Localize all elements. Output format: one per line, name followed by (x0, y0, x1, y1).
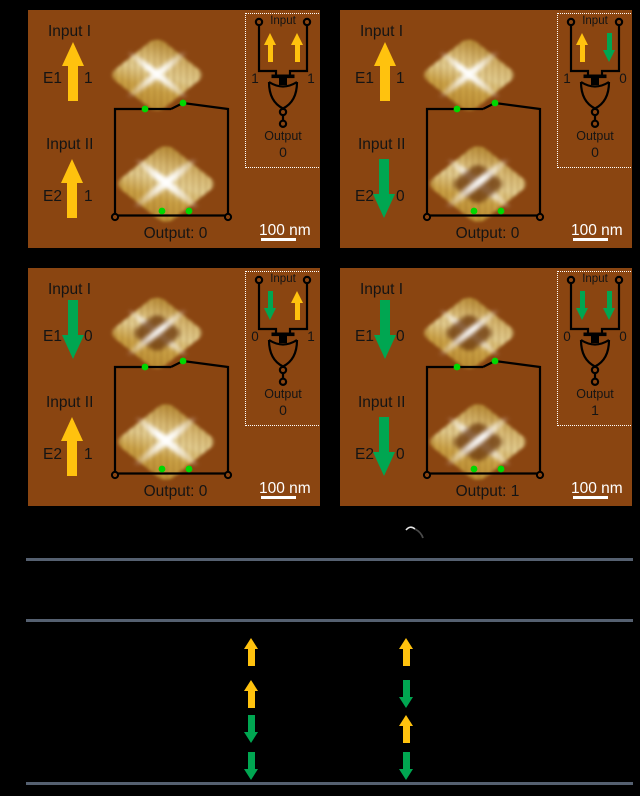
scalebar-line (573, 238, 608, 241)
table-row1-input1-arrow-icon (244, 638, 259, 666)
logic-gate-inset: Input 0 1 Output 0 (245, 271, 320, 426)
inset-output-label: Output (246, 129, 320, 143)
scalebar-label: 100 nm (571, 222, 623, 239)
inset-right-bit: 0 (616, 329, 630, 344)
afm-panel-10: Input I E1 1 Input II E2 0 Output: 0 100… (340, 10, 632, 248)
output-label: Output: 1 (435, 483, 540, 500)
inset-output-value: 0 (558, 144, 632, 160)
inset-left-bit: 1 (560, 71, 574, 86)
table-row2-input1-arrow-icon (244, 680, 259, 708)
inset-right-arrow-icon (291, 33, 304, 62)
output-label: Output: 0 (123, 483, 228, 500)
inset-output-value: 0 (246, 144, 320, 160)
scalebar-label: 100 nm (259, 480, 311, 497)
inset-output-label: Output (558, 387, 632, 401)
afm-panel-01: Input I E1 0 Input II E2 1 Output: 0 100… (28, 268, 320, 506)
table-row1-input2-arrow-icon (399, 638, 414, 666)
inset-right-bit: 1 (304, 329, 318, 344)
inset-left-arrow-icon (576, 291, 589, 320)
table-rule-middle (26, 619, 633, 622)
afm-panel-00: Input I E1 0 Input II E2 0 Output: 1 100… (340, 268, 632, 506)
inset-output-label: Output (558, 129, 632, 143)
inset-left-arrow-icon (264, 291, 277, 320)
inset-right-bit: 0 (616, 71, 630, 86)
inset-right-bit: 1 (304, 71, 318, 86)
inset-right-arrow-icon (291, 291, 304, 320)
afm-panel-11: Input I E1 1 Input II E2 1 Output: 0 100… (28, 10, 320, 248)
table-row4-input1-arrow-icon (244, 752, 259, 780)
inset-left-bit: 0 (248, 329, 262, 344)
scalebar-label: 100 nm (571, 480, 623, 497)
scalebar-label: 100 nm (259, 222, 311, 239)
inset-left-arrow-icon (576, 33, 589, 62)
output-label: Output: 0 (435, 225, 540, 242)
scalebar-line (261, 496, 296, 499)
logic-gate-inset: Input 0 0 Output 1 (557, 271, 632, 426)
logic-gate-inset: Input 1 0 Output 0 (557, 13, 632, 168)
table-row2-input2-arrow-icon (399, 680, 414, 708)
inset-output-value: 1 (558, 402, 632, 418)
scalebar-line (261, 238, 296, 241)
inset-output-label: Output (246, 387, 320, 401)
output-label: Output: 0 (123, 225, 228, 242)
inset-left-bit: 1 (248, 71, 262, 86)
table-row3-input1-arrow-icon (244, 715, 259, 743)
nor-gate-figure: Input I E1 1 Input II E2 1 Output: 0 100… (0, 0, 640, 796)
table-rule-bottom (26, 782, 633, 785)
inset-left-arrow-icon (264, 33, 277, 62)
table-rule-top (26, 558, 633, 561)
inset-right-arrow-icon (603, 291, 616, 320)
table-row4-input2-arrow-icon (399, 752, 414, 780)
stray-mark (402, 521, 432, 541)
scalebar-line (573, 496, 608, 499)
logic-gate-inset: Input 1 1 Output 0 (245, 13, 320, 168)
inset-right-arrow-icon (603, 33, 616, 62)
inset-left-bit: 0 (560, 329, 574, 344)
inset-output-value: 0 (246, 402, 320, 418)
table-row3-input2-arrow-icon (399, 715, 414, 743)
